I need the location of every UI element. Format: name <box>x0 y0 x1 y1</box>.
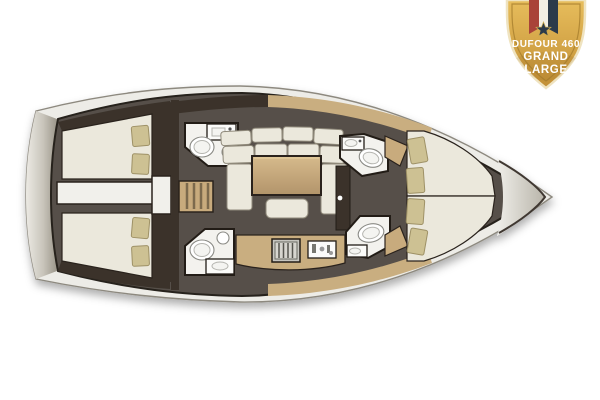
settee-seat-cushion <box>223 145 255 163</box>
pillow <box>131 125 150 146</box>
settee-back-cushion <box>252 128 282 143</box>
pillow <box>406 167 425 193</box>
badge-range-2: LARGE <box>524 64 567 76</box>
anchor-locker <box>497 158 546 236</box>
saloon-bench <box>266 199 308 218</box>
pillow <box>407 228 428 256</box>
pillow <box>407 137 428 165</box>
badge-model: DUFOUR 460 <box>512 39 580 50</box>
galley <box>236 235 345 270</box>
engine-compartment <box>57 182 157 204</box>
wardrobe <box>152 212 172 282</box>
page: DUFOUR 460 GRAND LARGE <box>0 0 600 400</box>
hull <box>26 86 552 302</box>
faucet-icon <box>359 140 362 143</box>
washbasin-icon <box>212 262 228 270</box>
pillow <box>131 154 149 175</box>
sink-basin <box>320 247 325 252</box>
settee-back-cushion <box>283 127 313 142</box>
wardrobe <box>152 110 172 180</box>
pillow <box>131 246 149 267</box>
faucet-icon <box>228 127 231 130</box>
toilet-bowl <box>194 141 210 154</box>
settee-arm-left <box>227 164 252 210</box>
sink-basin <box>329 251 333 255</box>
sink-icon <box>217 232 229 244</box>
floorplan-canvas: DUFOUR 460 GRAND LARGE <box>0 0 600 400</box>
settee-back-cushion <box>314 128 344 144</box>
door-knob <box>338 196 343 201</box>
toilet-bowl <box>194 244 210 257</box>
engine-compartment-box <box>152 176 171 214</box>
badge-range-1: GRAND <box>523 51 568 63</box>
washbasin-icon <box>345 140 357 147</box>
companionway-steps <box>179 181 213 212</box>
pillow <box>406 198 425 224</box>
brand-badge: DUFOUR 460 GRAND LARGE <box>507 0 585 88</box>
washbasin-icon <box>350 248 361 254</box>
bow-wedge <box>497 158 546 236</box>
bulkhead-aft <box>171 100 179 290</box>
saloon-table <box>252 156 321 195</box>
forward-cabin <box>406 131 495 261</box>
pillow <box>131 217 150 238</box>
faucet-icon <box>312 244 316 253</box>
settee-back-cushion <box>221 130 252 146</box>
